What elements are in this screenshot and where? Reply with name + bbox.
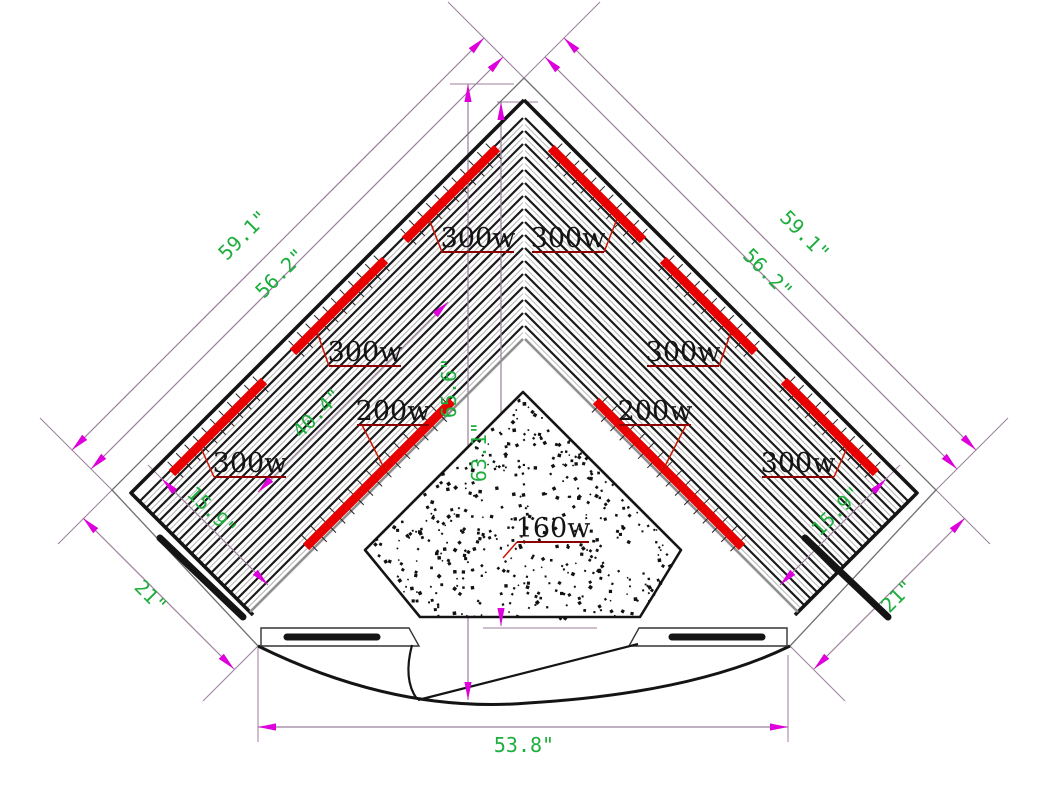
benches xyxy=(261,628,787,646)
watt-floor-center: 160w xyxy=(516,513,591,544)
dim-vertical-floor-heater: 63.1" xyxy=(467,422,491,482)
dim-back-inner-right: 56.2" xyxy=(738,243,798,303)
watt-bench-right: 200w xyxy=(618,396,693,427)
watt-lower-left: 300w xyxy=(213,448,288,479)
dim-front-width: 53.8" xyxy=(494,733,554,757)
watt-mid-right: 300w xyxy=(646,337,721,368)
watt-top-right: 300w xyxy=(531,223,606,254)
sauna-floor-plan-drawing: 59.1" 56.2" 59.1" 56.2" 21" 21" 15.9" 15… xyxy=(0,0,1056,800)
bow-front-wall xyxy=(258,646,790,705)
dim-back-inner-left: 56.2" xyxy=(250,243,310,303)
watt-mid-left: 300w xyxy=(328,337,403,368)
door-leaf xyxy=(418,644,638,700)
door-swing-arc xyxy=(408,645,417,699)
watt-bench-left: 200w xyxy=(356,396,431,427)
drawing-canvas: 59.1" 56.2" 59.1" 56.2" 21" 21" 15.9" 15… xyxy=(0,0,1056,800)
dim-back-outer-left: 59.1" xyxy=(213,205,273,265)
watt-lower-right: 300w xyxy=(761,448,836,479)
watt-top-left: 300w xyxy=(441,223,516,254)
dimension-arrows xyxy=(69,35,978,730)
dim-vertical-total: 65.6" xyxy=(437,358,461,418)
dim-side-left: 21" xyxy=(130,575,173,618)
dimension-lines xyxy=(40,2,1008,742)
door xyxy=(408,644,638,700)
dim-back-outer-right: 59.1" xyxy=(775,205,835,265)
